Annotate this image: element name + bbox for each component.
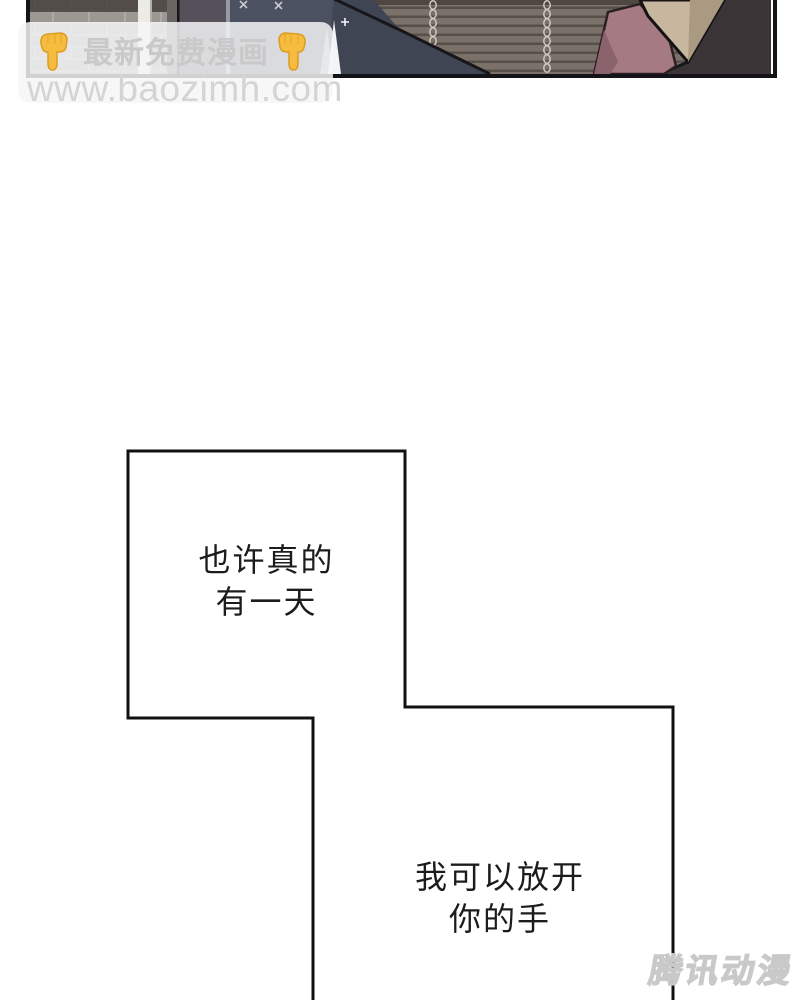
speech-line: 你的手 <box>327 898 673 940</box>
brick-top-shadow <box>30 0 177 12</box>
corner-logo-watermark: 腾讯动漫 <box>646 944 798 992</box>
speech-line: 也许真的 <box>128 539 405 581</box>
speech-bubbles <box>0 0 800 1000</box>
pointing-down-hand-icon <box>37 30 69 72</box>
speech-line: 有一天 <box>128 581 405 623</box>
speech-bubble-1-text: 也许真的 有一天 <box>128 539 405 623</box>
speech-line: 我可以放开 <box>327 856 673 898</box>
promo-banner-label: 最新免费漫画 <box>82 37 270 71</box>
pointing-down-hand-icon <box>277 30 309 72</box>
speech-bubble-2-text: 我可以放开 你的手 <box>327 856 673 940</box>
site-url-watermark: www.baozimh.com <box>27 68 343 110</box>
